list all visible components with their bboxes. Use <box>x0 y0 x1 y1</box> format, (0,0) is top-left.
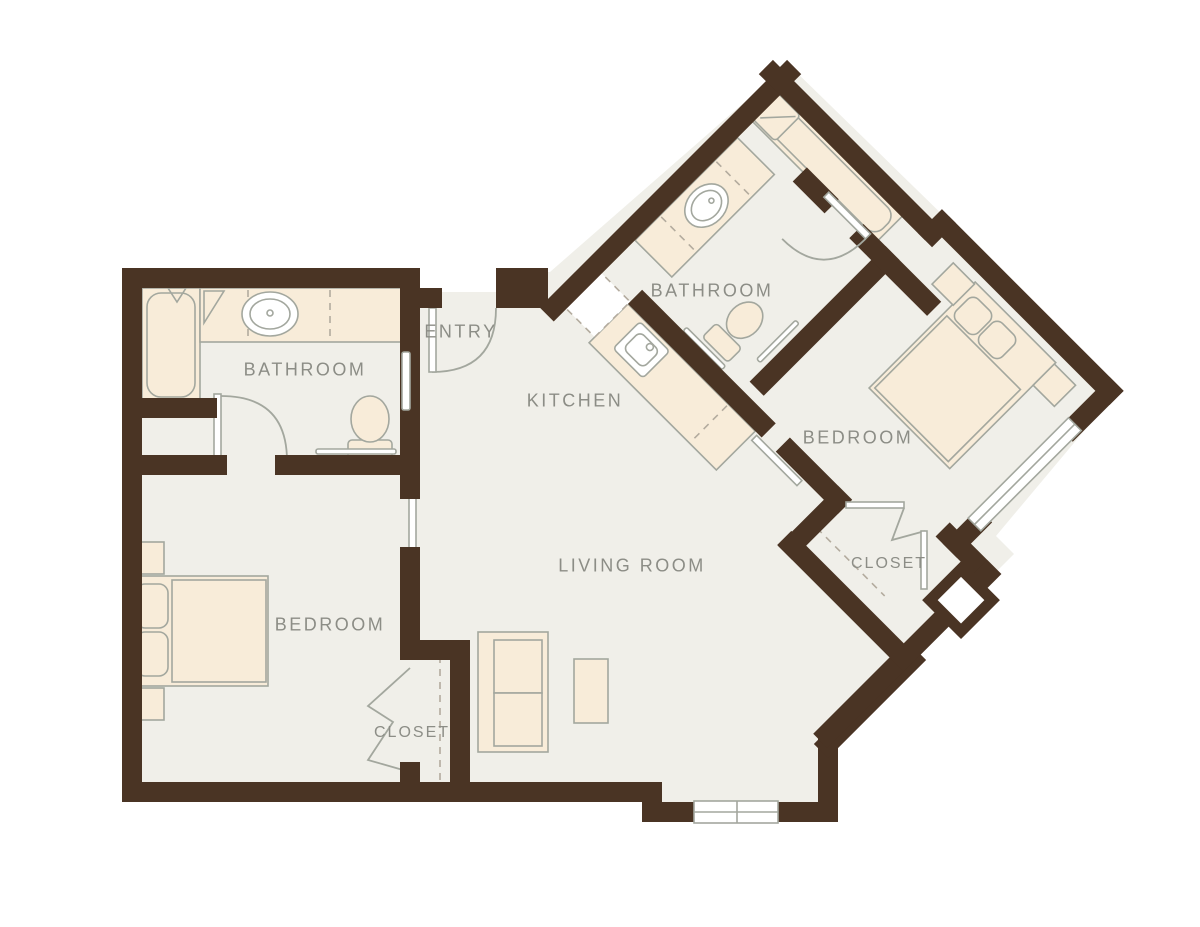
grab-bar <box>402 352 410 410</box>
floorplan-drawing <box>0 0 1200 927</box>
vanity-sink-1 <box>200 288 410 342</box>
coffee-table <box>574 659 608 723</box>
sofa <box>478 632 548 752</box>
room-label-bathroom-2: BATHROOM <box>651 281 774 302</box>
room-label-entry: ENTRY <box>424 322 497 343</box>
bathtub-1 <box>138 288 200 402</box>
floorplan: BATHROOM ENTRY KITCHEN BATHROOM BEDROOM … <box>0 0 1200 927</box>
room-label-bedroom-2: BEDROOM <box>803 428 914 449</box>
room-label-closet-1: CLOSET <box>374 724 450 742</box>
room-label-bathroom-1: BATHROOM <box>244 360 367 381</box>
wall-step <box>496 268 548 308</box>
room-label-kitchen: KITCHEN <box>527 391 624 412</box>
room-label-closet-2: CLOSET <box>851 555 927 573</box>
room-label-bedroom-1: BEDROOM <box>275 615 386 636</box>
room-label-living-room: LIVING ROOM <box>558 556 706 577</box>
window-living-room <box>694 801 778 823</box>
